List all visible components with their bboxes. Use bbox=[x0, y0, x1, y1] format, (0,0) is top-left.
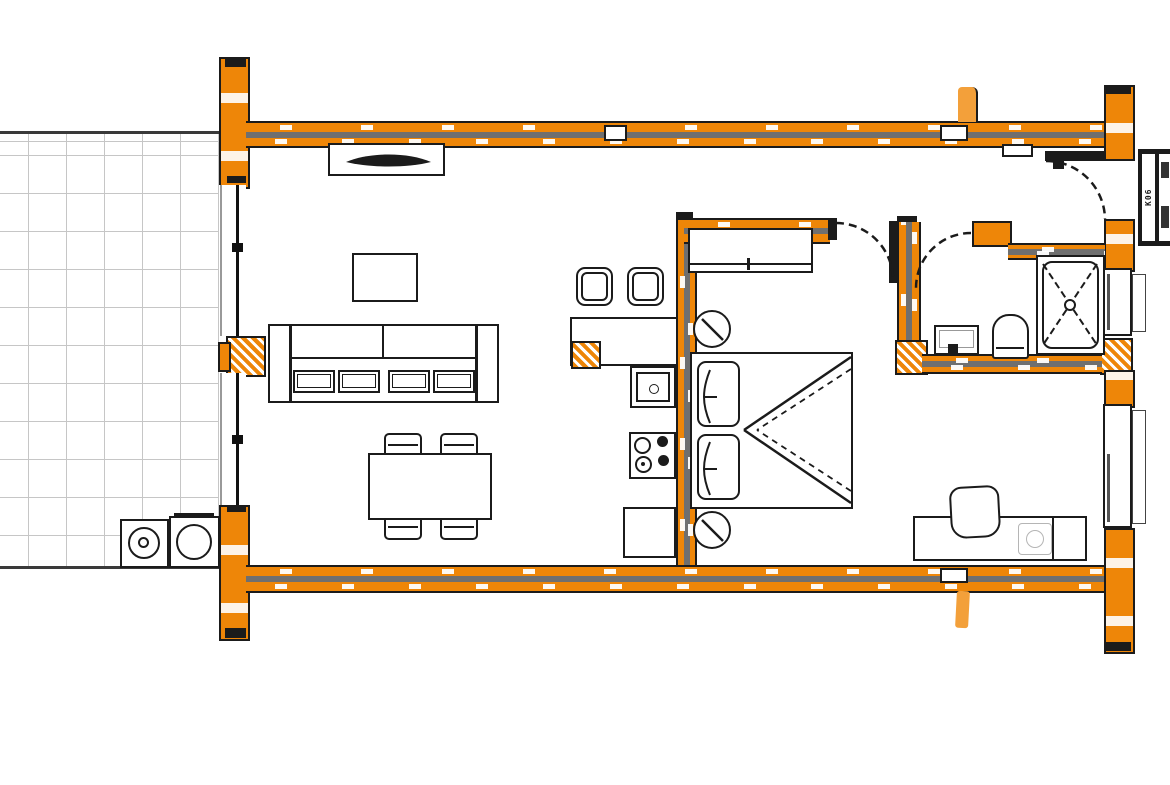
cabinet-glyph bbox=[1161, 206, 1169, 228]
bed-pillow bbox=[697, 361, 740, 427]
wall-east-segment-a bbox=[1104, 219, 1135, 272]
desk-lamp-icon bbox=[1018, 523, 1052, 555]
kitchen-counter-post-hatch bbox=[571, 341, 601, 369]
entrance-threshold bbox=[1002, 144, 1033, 157]
dining-chair bbox=[384, 518, 422, 540]
terrace-top-edge bbox=[0, 131, 219, 134]
glazing-outer-line bbox=[220, 373, 222, 505]
shower bbox=[1036, 255, 1105, 355]
sofa-armrest-left bbox=[289, 326, 292, 401]
glazing-outer-line bbox=[220, 185, 222, 336]
post-bottom-right bbox=[1104, 528, 1135, 654]
sofa-seat-edge bbox=[291, 357, 476, 359]
dryer-drum-icon bbox=[176, 524, 212, 560]
bedside-lamp bbox=[693, 511, 731, 549]
sink-drain-icon bbox=[649, 384, 659, 394]
post-top-left-inner-cap bbox=[227, 176, 246, 183]
dryer-control-panel bbox=[174, 513, 214, 518]
bedroom-window-exterior bbox=[1132, 410, 1146, 524]
stove-burner-icon bbox=[635, 456, 652, 473]
washing-machine-door-icon bbox=[138, 537, 149, 548]
bathroom-window bbox=[1103, 268, 1132, 336]
tv-sideboard bbox=[328, 143, 445, 176]
bathroom-door-swing-arc bbox=[916, 233, 971, 288]
entrance-door-leaf bbox=[1045, 151, 1106, 161]
entrance-door-handle bbox=[1053, 161, 1064, 169]
wall-north-joint-1 bbox=[604, 125, 627, 141]
cabinet-label: K06 bbox=[1144, 189, 1153, 206]
bedroom-window bbox=[1103, 404, 1132, 528]
stove-burner-icon bbox=[657, 436, 668, 447]
sofa-cushion bbox=[433, 370, 475, 393]
cabinet-glyph bbox=[1161, 162, 1169, 178]
kitchen-base-cabinet bbox=[623, 507, 676, 558]
kitchen-sink-unit bbox=[630, 366, 676, 408]
wall-south-marker bbox=[955, 591, 970, 629]
stove-burner-icon bbox=[634, 437, 651, 454]
wall-bathroom-west-cap bbox=[897, 216, 917, 222]
glazing-mullion bbox=[232, 435, 243, 444]
dining-chair bbox=[440, 518, 478, 540]
cabinet-cell-2 bbox=[1159, 154, 1170, 241]
post-mid-left-hatch bbox=[226, 336, 266, 377]
bedside-lamp bbox=[693, 310, 731, 348]
bed-pillow bbox=[697, 434, 740, 500]
stove-burner-icon bbox=[658, 455, 669, 466]
roof-vent bbox=[958, 87, 978, 122]
sofa-cushion bbox=[388, 370, 430, 393]
coffee-table bbox=[352, 253, 418, 302]
terrace-tile-grid bbox=[0, 134, 219, 566]
wall-bathroom-door-jamb bbox=[972, 221, 1012, 247]
window-glazing-line bbox=[1107, 454, 1110, 522]
sofa-armrest-right bbox=[475, 326, 478, 401]
wardrobe bbox=[688, 228, 813, 273]
cabinet-label-cell: K06 bbox=[1142, 154, 1155, 241]
post-bottom-left-cap bbox=[225, 628, 246, 638]
glazing-lower bbox=[219, 373, 246, 505]
bathroom-window-exterior bbox=[1132, 274, 1146, 332]
washbasin-tap-icon bbox=[948, 344, 958, 353]
post-bottom-right-cap bbox=[1104, 642, 1131, 651]
dining-table bbox=[368, 453, 492, 520]
wall-bedroom-north-endcap bbox=[828, 218, 837, 240]
sofa-cushion bbox=[338, 370, 380, 393]
window-glazing-line bbox=[1107, 274, 1110, 330]
toilet bbox=[992, 314, 1029, 359]
wall-south-joint bbox=[940, 568, 968, 583]
wall-east-segment-b bbox=[1104, 370, 1135, 408]
bar-stool bbox=[627, 267, 664, 306]
meter-cabinet: K06 bbox=[1138, 149, 1170, 246]
desk-chair bbox=[949, 485, 1002, 540]
wall-bathroom-west bbox=[897, 222, 921, 340]
glazing-mullion bbox=[232, 243, 243, 252]
floor-plan: K06 bbox=[0, 0, 1170, 785]
glazing-upper bbox=[219, 185, 246, 336]
post-mid-left-tab bbox=[218, 342, 231, 372]
wall-north-joint-2 bbox=[940, 125, 968, 141]
dining-chair bbox=[384, 433, 422, 455]
sofa-cushion bbox=[293, 370, 335, 393]
sofa-back-divider bbox=[382, 326, 384, 359]
post-bottom-left-inner-cap bbox=[227, 505, 246, 512]
post-top-right-cap bbox=[1104, 85, 1131, 94]
wall-south bbox=[246, 565, 1105, 593]
glazing-inner-line bbox=[236, 185, 239, 336]
entrance-door-swing-arc bbox=[1046, 161, 1105, 219]
post-top-right bbox=[1104, 85, 1135, 161]
post-top-left-cap bbox=[225, 57, 246, 67]
bedroom-door-swing-arc bbox=[836, 223, 893, 280]
dining-chair bbox=[440, 433, 478, 455]
bar-stool bbox=[576, 267, 613, 306]
